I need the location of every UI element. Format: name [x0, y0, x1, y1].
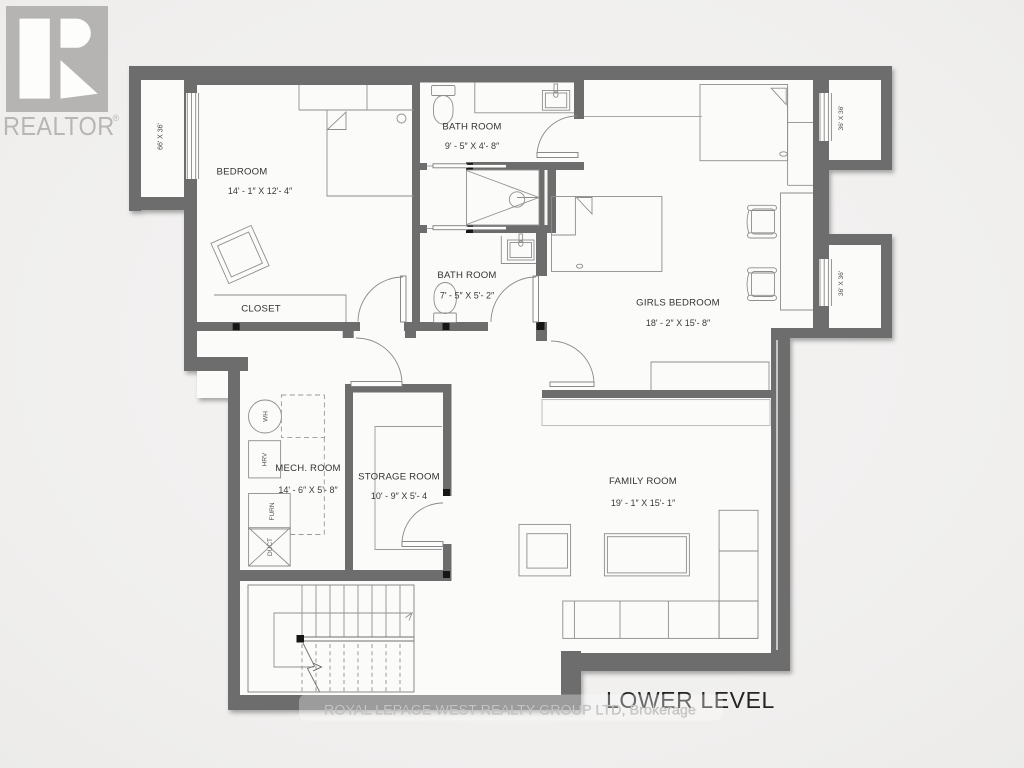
svg-text:14' - 1″ X 12'- 4″: 14' - 1″ X 12'- 4″	[228, 186, 293, 196]
svg-text:®: ®	[113, 113, 120, 123]
svg-text:REALTOR: REALTOR	[3, 112, 115, 142]
svg-text:STORAGE ROOM: STORAGE ROOM	[358, 472, 440, 483]
svg-text:9' - 5″ X 4'- 8″: 9' - 5″ X 4'- 8″	[445, 141, 500, 151]
svg-text:7' - 5″ X 5'- 2″: 7' - 5″ X 5'- 2″	[440, 291, 495, 301]
svg-text:18' - 2″ X 15'- 8″: 18' - 2″ X 15'- 8″	[646, 318, 711, 328]
svg-text:FURN: FURN	[269, 502, 276, 520]
svg-text:10' - 9″ X 5'- 4: 10' - 9″ X 5'- 4	[371, 491, 427, 501]
svg-text:36' X 36': 36' X 36'	[838, 271, 845, 296]
svg-text:CLOSET: CLOSET	[241, 304, 281, 315]
svg-text:BATH ROOM: BATH ROOM	[437, 270, 496, 281]
svg-text:14' - 6″ X 5'- 8″: 14' - 6″ X 5'- 8″	[278, 485, 338, 495]
svg-text:BEDROOM: BEDROOM	[217, 167, 268, 178]
svg-text:WH: WH	[263, 411, 270, 422]
svg-text:66' X 36': 66' X 36'	[158, 123, 165, 150]
svg-text:BATH ROOM: BATH ROOM	[442, 122, 501, 133]
svg-text:MECH. ROOM: MECH. ROOM	[275, 463, 340, 474]
svg-text:36' X 36': 36' X 36'	[838, 106, 845, 131]
svg-text:GIRLS BEDROOM: GIRLS BEDROOM	[636, 298, 720, 309]
svg-text:19' - 1″ X 15'- 1″: 19' - 1″ X 15'- 1″	[611, 498, 676, 508]
svg-text:FAMILY ROOM: FAMILY ROOM	[609, 476, 677, 487]
svg-text:HRV: HRV	[262, 452, 269, 466]
svg-text:ROYAL LEPAGE WEST REALTY GROUP: ROYAL LEPAGE WEST REALTY GROUP LTD, Brok…	[324, 703, 696, 719]
svg-text:DUCT: DUCT	[267, 538, 274, 556]
